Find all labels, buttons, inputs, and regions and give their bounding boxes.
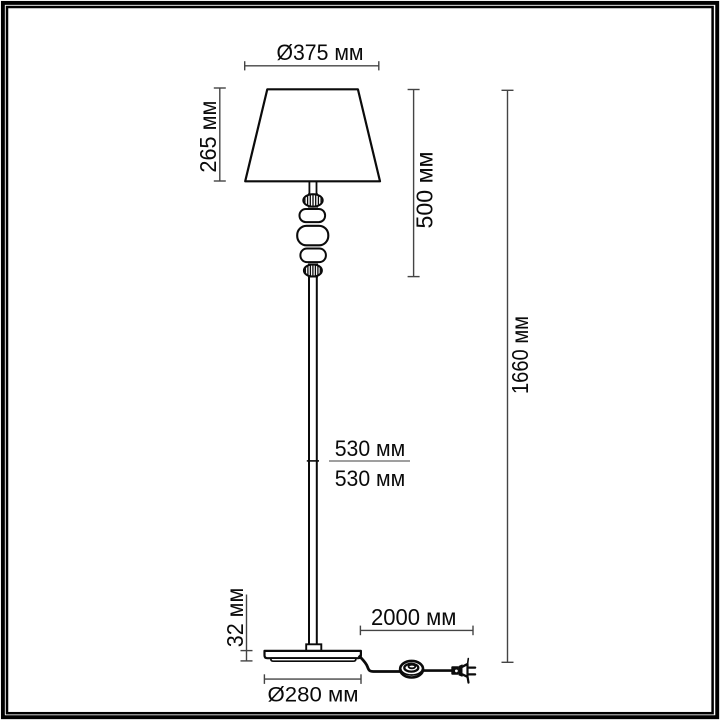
svg-text:530 мм: 530 мм: [335, 436, 406, 461]
svg-text:1660 мм: 1660 мм: [507, 316, 533, 394]
svg-text:Ø280 мм: Ø280 мм: [268, 683, 359, 707]
svg-text:500 мм: 500 мм: [412, 152, 438, 229]
svg-text:530 мм: 530 мм: [335, 466, 406, 491]
svg-text:Ø375 мм: Ø375 мм: [277, 40, 364, 65]
svg-text:265 мм: 265 мм: [195, 101, 221, 173]
svg-text:2000 мм: 2000 мм: [371, 604, 457, 630]
svg-text:32 мм: 32 мм: [222, 588, 248, 648]
